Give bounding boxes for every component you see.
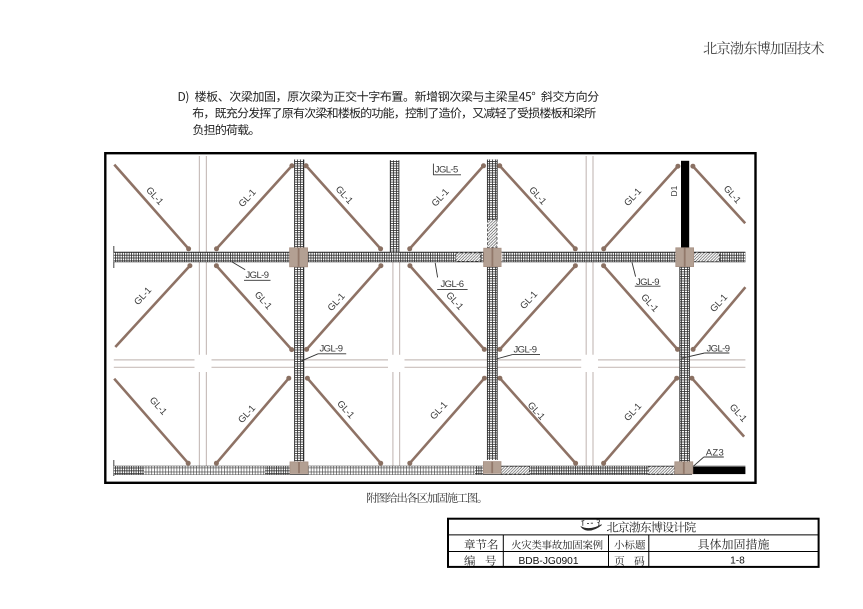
svg-text:JGL-6: JGL-6 <box>441 279 465 290</box>
svg-text:D1: D1 <box>669 185 679 196</box>
svg-text:JGL-5: JGL-5 <box>435 165 459 176</box>
svg-text:JGL-9: JGL-9 <box>514 344 538 355</box>
svg-text:JGL-9: JGL-9 <box>320 344 344 355</box>
svg-text:1-8: 1-8 <box>730 556 745 567</box>
svg-text:JGL-9: JGL-9 <box>246 270 270 281</box>
svg-text:BDB-JG0901: BDB-JG0901 <box>518 556 578 567</box>
